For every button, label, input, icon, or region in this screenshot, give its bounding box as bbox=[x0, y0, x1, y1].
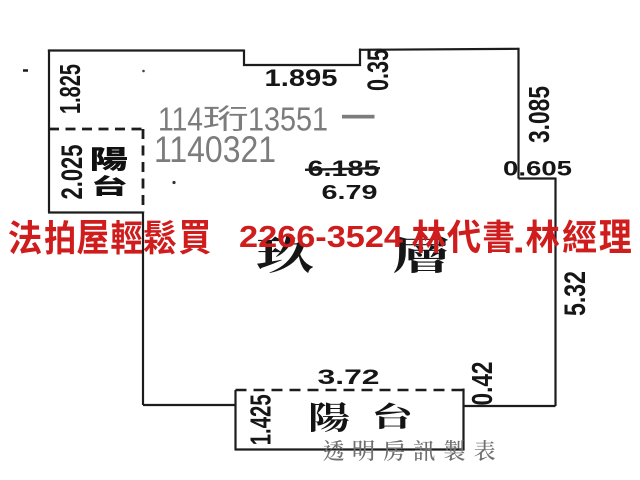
svg-text:2.025: 2.025 bbox=[56, 145, 89, 200]
svg-text:0.35: 0.35 bbox=[362, 49, 395, 91]
svg-text:5.32: 5.32 bbox=[559, 271, 592, 316]
svg-text:6.79: 6.79 bbox=[322, 182, 378, 204]
svg-text:1.825: 1.825 bbox=[55, 64, 87, 114]
svg-text:0.42: 0.42 bbox=[467, 362, 499, 406]
svg-text:0.605: 0.605 bbox=[503, 158, 572, 181]
svg-text:2266-3524: 2266-3524 bbox=[239, 219, 404, 254]
svg-text:3.72: 3.72 bbox=[318, 366, 380, 389]
svg-text:3.085: 3.085 bbox=[524, 86, 556, 143]
svg-text:1140321: 1140321 bbox=[154, 129, 276, 170]
svg-text:1.425: 1.425 bbox=[246, 394, 278, 445]
svg-text:1.895: 1.895 bbox=[265, 65, 338, 92]
